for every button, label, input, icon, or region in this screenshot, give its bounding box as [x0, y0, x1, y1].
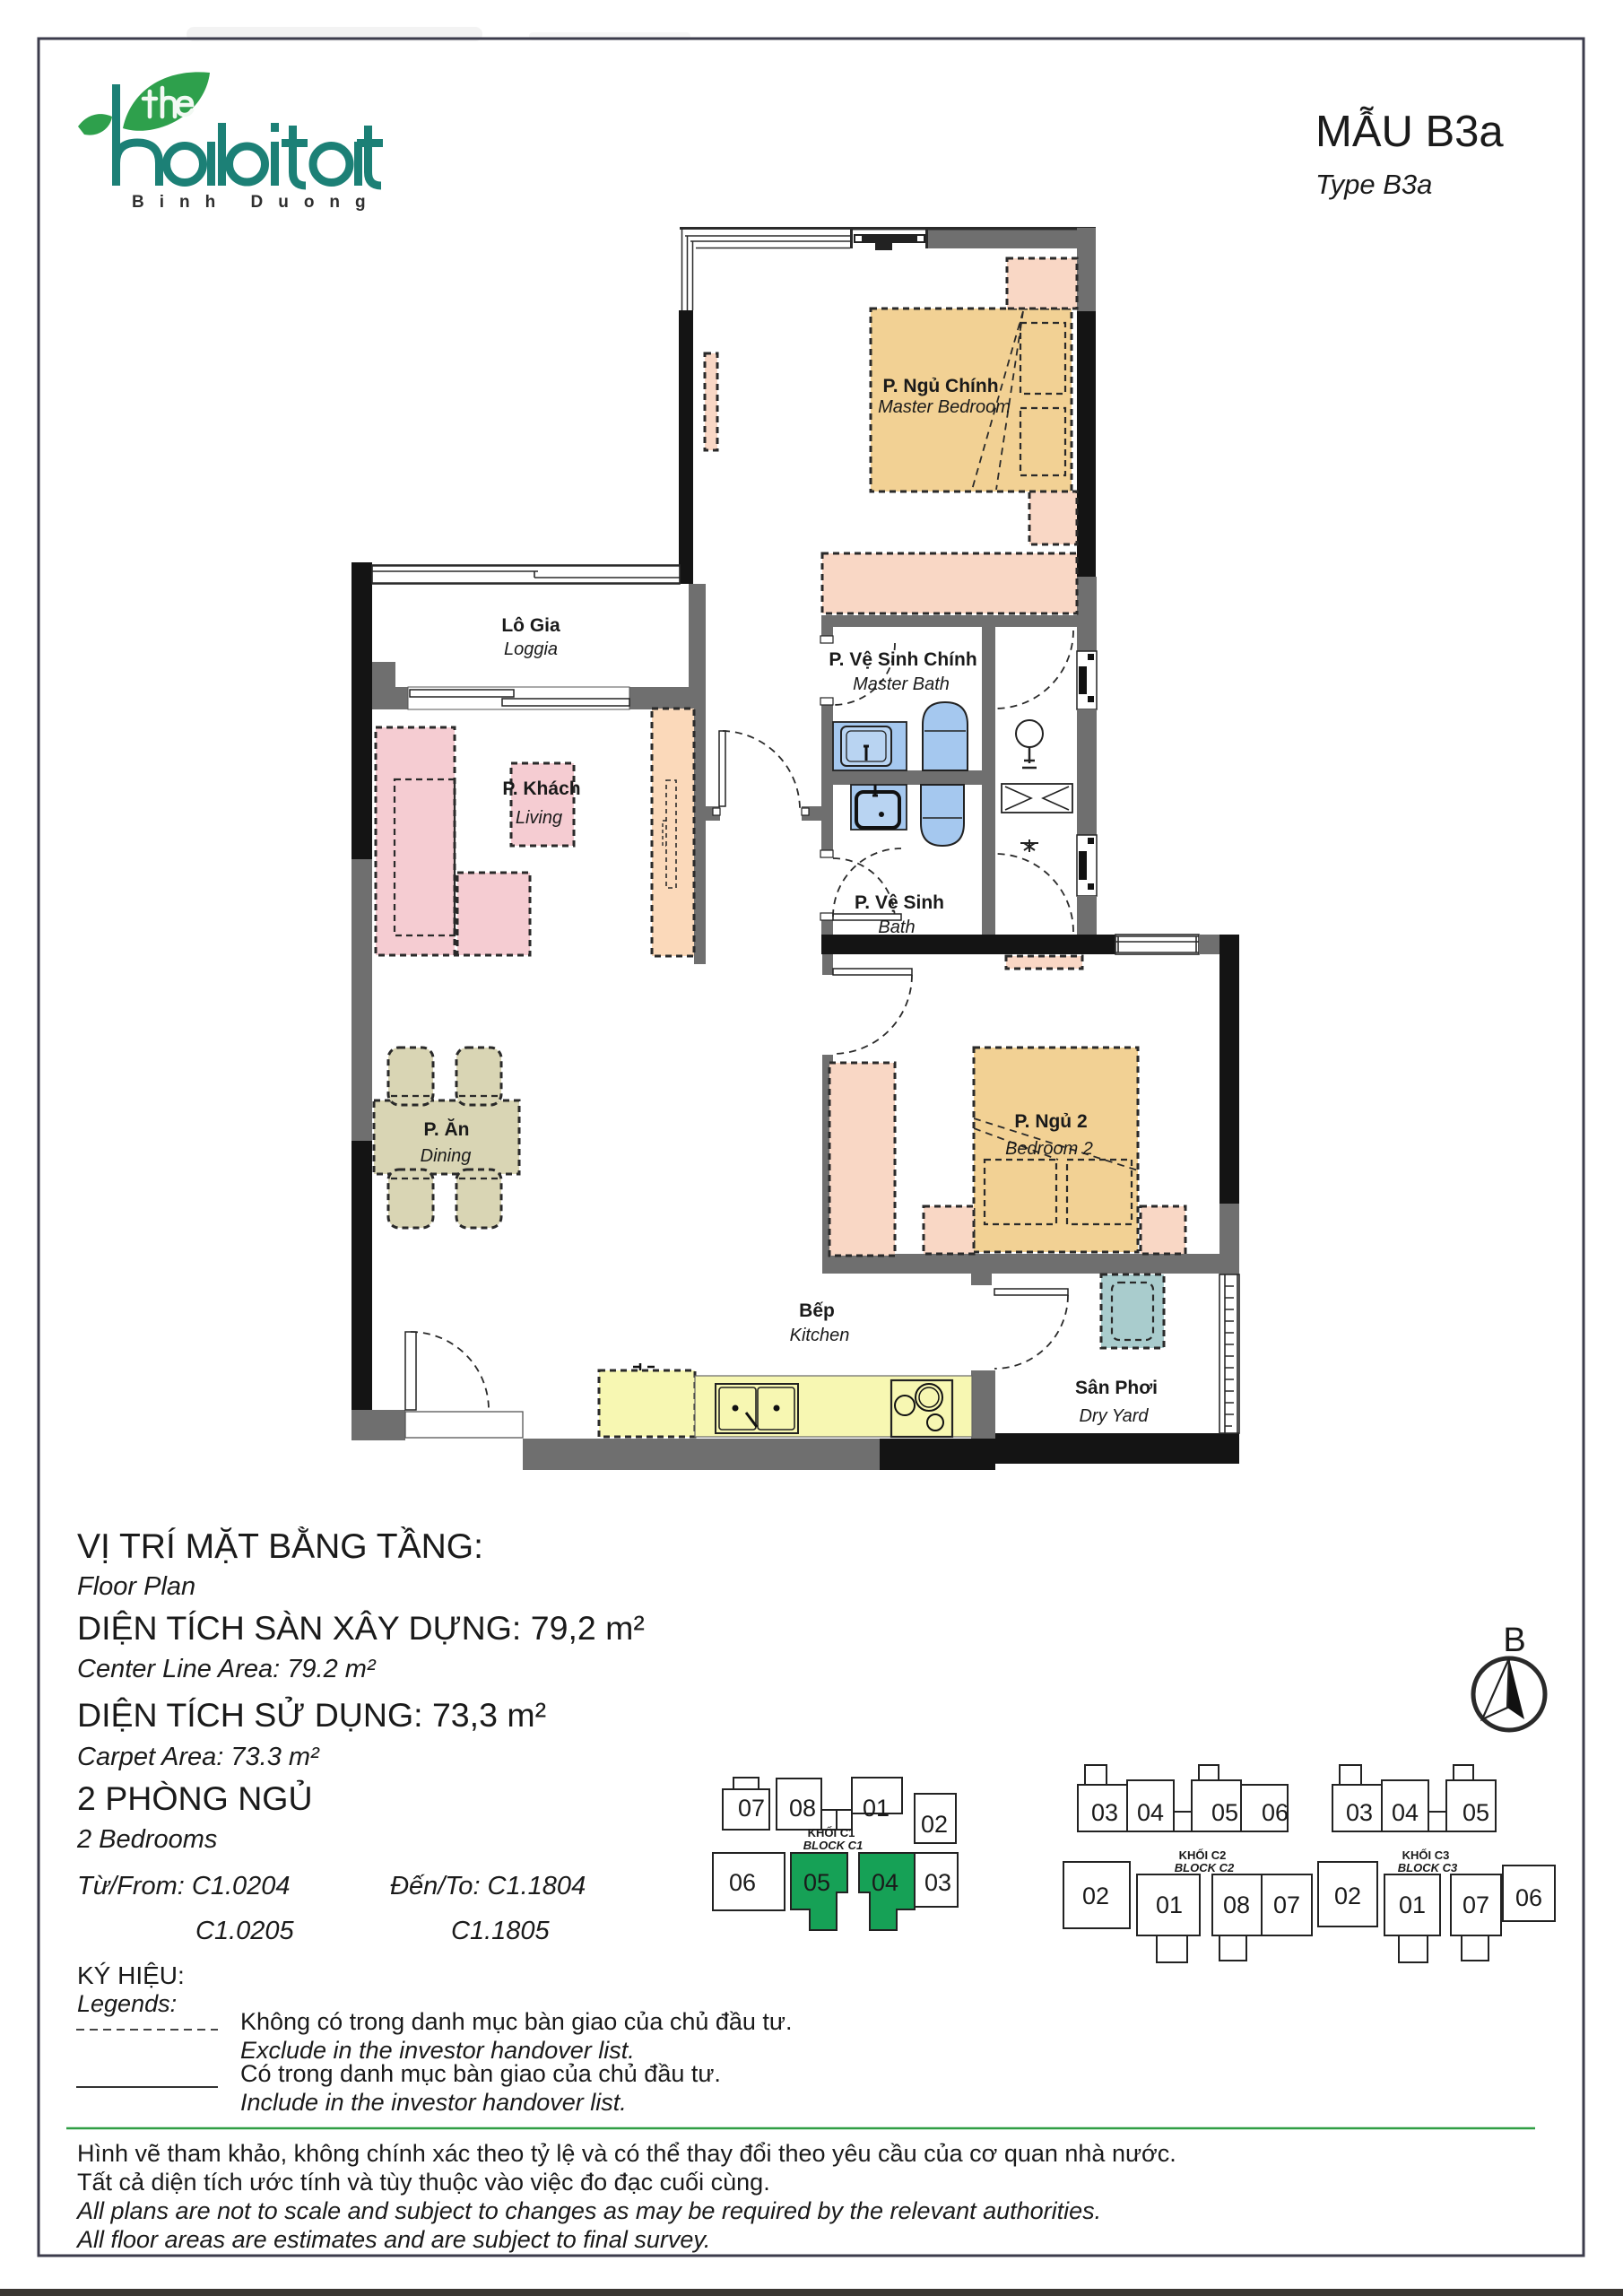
svg-text:Type B3a: Type B3a [1315, 169, 1432, 200]
svg-text:KHỐI C3: KHỐI C3 [1402, 1848, 1450, 1862]
svg-text:Legends:: Legends: [77, 1990, 177, 2017]
svg-text:Center Line Area: 79.2 m²: Center Line Area: 79.2 m² [77, 1655, 377, 1683]
svg-text:Include in the investor handov: Include in the investor handover list. [240, 2089, 627, 2116]
svg-text:08: 08 [789, 1795, 816, 1822]
svg-text:04: 04 [1392, 1799, 1419, 1826]
svg-text:DIỆN TÍCH SỬ DỤNG: 73,3 m²: DIỆN TÍCH SỬ DỤNG: 73,3 m² [77, 1696, 546, 1734]
svg-text:02: 02 [1334, 1883, 1361, 1909]
svg-text:07: 07 [1462, 1892, 1489, 1918]
svg-text:MẪU B3a: MẪU B3a [1315, 108, 1504, 156]
svg-text:P. Ngủ Chính: P. Ngủ Chính [882, 376, 998, 396]
svg-text:06: 06 [1515, 1884, 1542, 1911]
svg-text:07: 07 [1273, 1892, 1300, 1918]
svg-text:Binh Duong: Binh Duong [132, 193, 381, 212]
svg-text:Bedroom 2: Bedroom 2 [1005, 1139, 1093, 1159]
svg-text:Dry Yard: Dry Yard [1079, 1406, 1149, 1426]
svg-text:2 Bedrooms: 2 Bedrooms [76, 1825, 217, 1854]
svg-text:Đến/To: C1.1804: Đến/To: C1.1804 [390, 1872, 586, 1900]
svg-text:03: 03 [924, 1869, 951, 1896]
svg-text:Living: Living [516, 808, 562, 828]
svg-text:Loggia: Loggia [504, 639, 558, 659]
svg-text:KHỐI C1: KHỐI C1 [808, 1826, 855, 1839]
svg-text:06: 06 [1262, 1799, 1289, 1826]
svg-text:07: 07 [738, 1795, 765, 1822]
svg-text:C1.0205: C1.0205 [195, 1917, 295, 1945]
svg-text:01: 01 [1156, 1892, 1183, 1918]
svg-text:03: 03 [1346, 1799, 1373, 1826]
svg-text:01: 01 [1399, 1892, 1426, 1918]
svg-text:KÝ HIỆU:: KÝ HIỆU: [77, 1961, 185, 1989]
svg-text:08: 08 [1223, 1892, 1250, 1918]
svg-text:B: B [1503, 1622, 1525, 1659]
svg-text:02: 02 [921, 1811, 948, 1838]
svg-text:02: 02 [1082, 1883, 1109, 1909]
svg-text:04: 04 [872, 1869, 898, 1896]
svg-text:Dining: Dining [421, 1146, 472, 1166]
svg-text:BLOCK C3: BLOCK C3 [1398, 1861, 1458, 1874]
svg-text:P. Khách: P. Khách [502, 778, 580, 799]
svg-text:All plans are not to scale and: All plans are not to scale and subject t… [75, 2197, 1101, 2224]
svg-text:2 PHÒNG NGỦ: 2 PHÒNG NGỦ [77, 1779, 313, 1817]
svg-text:Tất cả diện tích ước tính và t: Tất cả diện tích ước tính và tùy thuộc v… [77, 2169, 770, 2196]
svg-text:Master Bedroom: Master Bedroom [878, 397, 1011, 417]
svg-text:Carpet Area: 73.3 m²: Carpet Area: 73.3 m² [77, 1743, 320, 1771]
svg-text:P. Ngủ 2: P. Ngủ 2 [1014, 1111, 1087, 1132]
svg-text:Floor Plan: Floor Plan [77, 1572, 195, 1601]
svg-text:Từ/From: C1.0204: Từ/From: C1.0204 [77, 1872, 291, 1900]
svg-text:03: 03 [1091, 1799, 1118, 1826]
svg-text:P. Vệ Sinh Chính: P. Vệ Sinh Chính [829, 649, 976, 670]
svg-text:06: 06 [729, 1869, 756, 1896]
svg-text:VỊ TRÍ MẶT BẰNG TẦNG:: VỊ TRÍ MẶT BẰNG TẦNG: [77, 1526, 483, 1566]
svg-text:01: 01 [863, 1795, 890, 1822]
svg-text:04: 04 [1137, 1799, 1164, 1826]
svg-text:Bếp: Bếp [799, 1300, 835, 1321]
svg-text:Hình vẽ tham khảo, không chính: Hình vẽ tham khảo, không chính xác theo … [77, 2140, 1176, 2167]
svg-text:BLOCK C2: BLOCK C2 [1175, 1861, 1235, 1874]
svg-text:Có trong danh mục bàn giao của: Có trong danh mục bàn giao của chủ đầu t… [240, 2060, 721, 2087]
svg-text:DIỆN TÍCH SÀN XÂY DỰNG: 79,2: DIỆN TÍCH SÀN XÂY DỰNG: 79,2 m² [77, 1609, 645, 1647]
svg-text:05: 05 [1211, 1799, 1238, 1826]
svg-text:C1.1805: C1.1805 [451, 1917, 551, 1945]
svg-text:05: 05 [803, 1869, 830, 1896]
svg-text:P. Vệ Sinh: P. Vệ Sinh [855, 892, 944, 913]
svg-text:Kitchen: Kitchen [790, 1326, 850, 1345]
svg-text:Bath: Bath [878, 918, 915, 937]
svg-text:KHỐI C2: KHỐI C2 [1179, 1848, 1227, 1862]
svg-text:BLOCK C1: BLOCK C1 [803, 1839, 863, 1852]
svg-text:All floor areas are estimates: All floor areas are estimates and are su… [75, 2226, 710, 2253]
svg-text:P. Ăn: P. Ăn [424, 1119, 470, 1140]
svg-text:Sân Phơi: Sân Phơi [1075, 1378, 1158, 1398]
svg-text:Không có trong danh mục bàn gi: Không có trong danh mục bàn giao của chủ… [240, 2008, 793, 2035]
svg-text:Lô Gia: Lô Gia [501, 615, 560, 636]
svg-text:05: 05 [1462, 1799, 1489, 1826]
svg-text:Master Bath: Master Bath [853, 674, 950, 694]
